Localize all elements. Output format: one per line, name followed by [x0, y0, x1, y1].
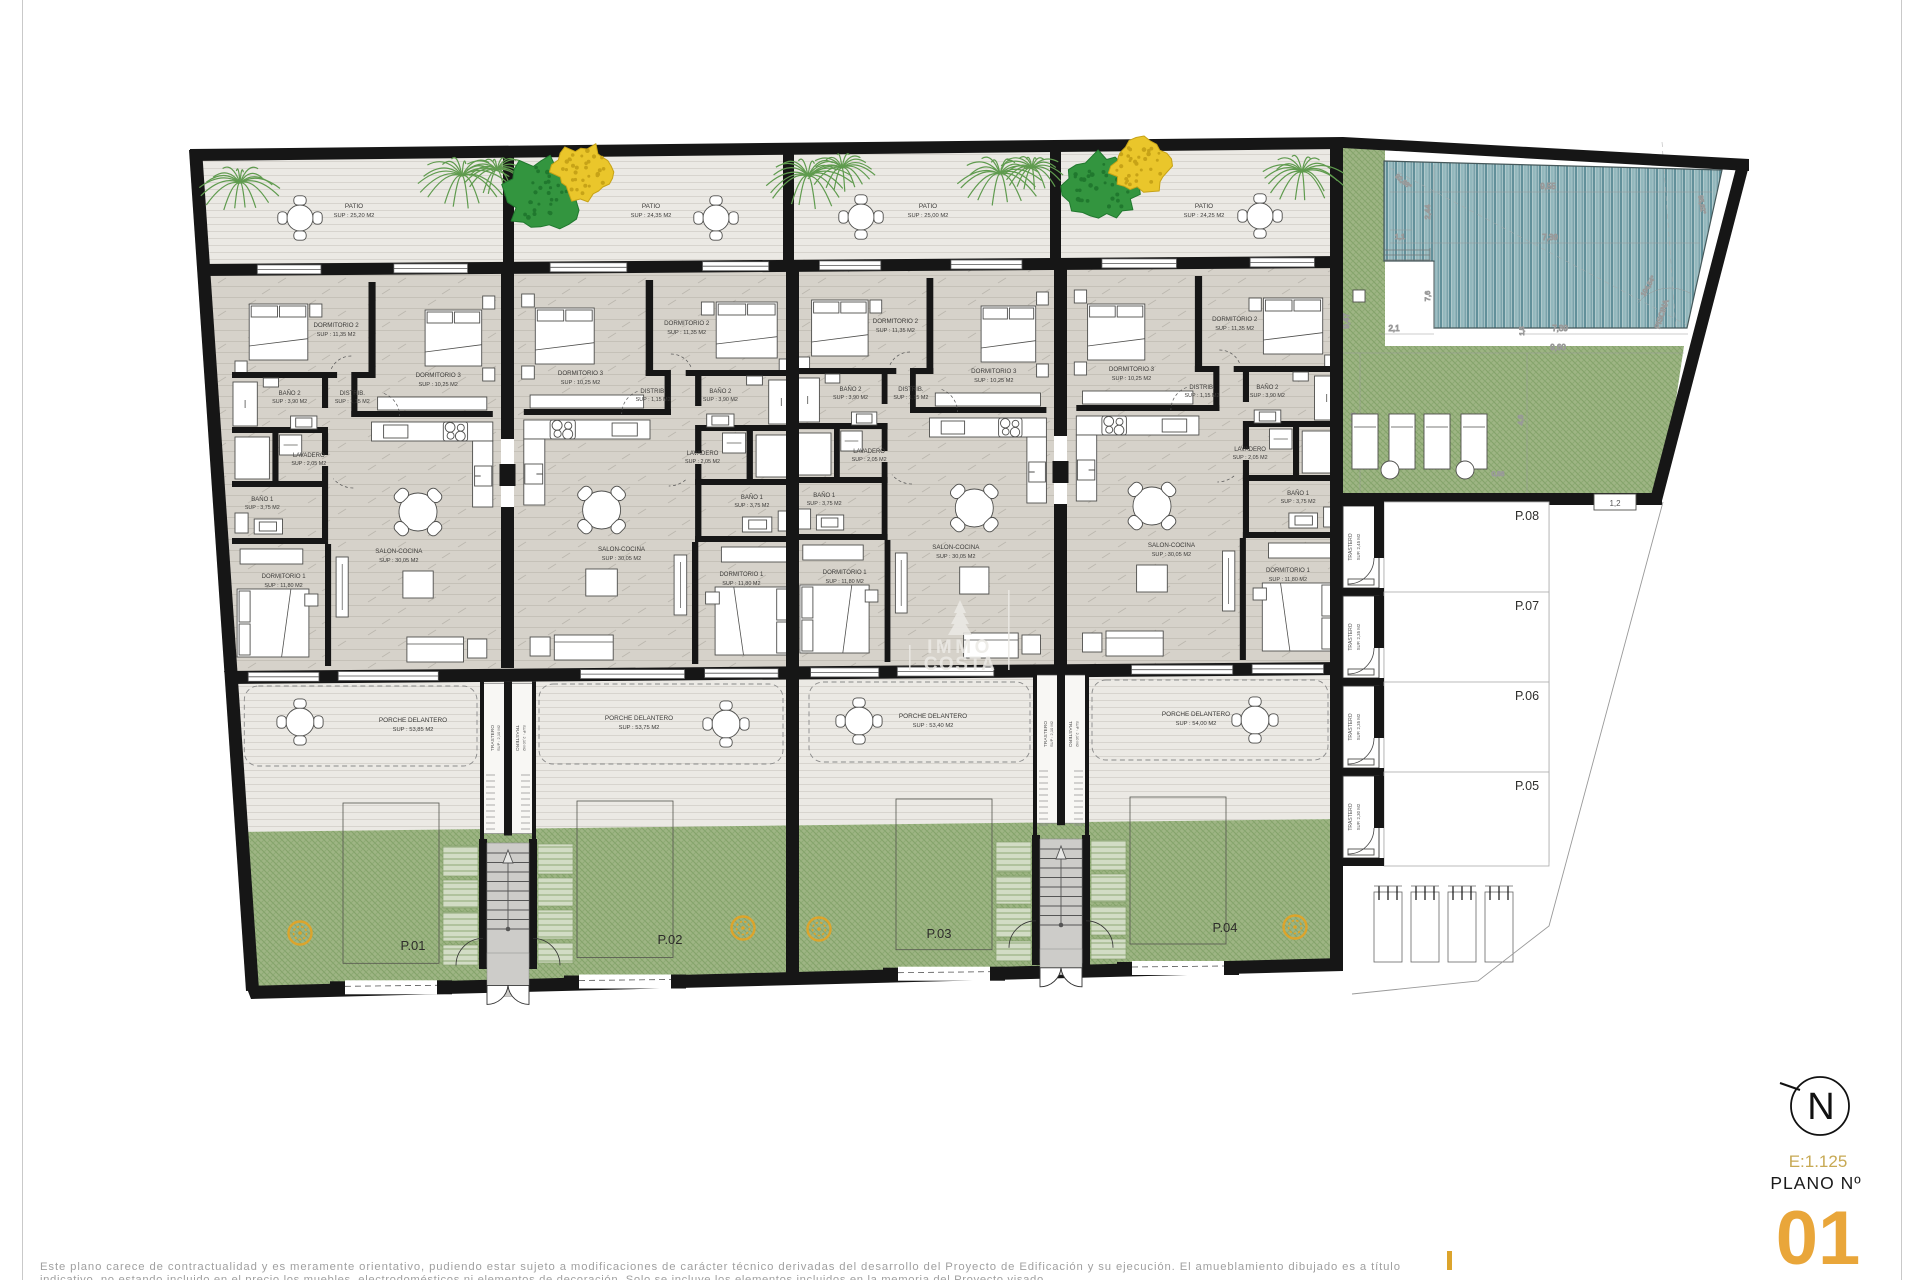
svg-text:DORMITORIO 2: DORMITORIO 2 [1212, 316, 1258, 323]
svg-text:BAÑO 2: BAÑO 2 [1256, 384, 1279, 391]
svg-text:DORMITORIO 1: DORMITORIO 1 [719, 572, 764, 578]
svg-text:SUP : 3,90 M2: SUP : 3,90 M2 [833, 395, 868, 401]
svg-text:1,1: 1,1 [1395, 232, 1405, 241]
svg-text:2,1: 2,1 [1388, 324, 1400, 333]
svg-text:DISTRIB.: DISTRIB. [1189, 385, 1215, 391]
svg-text:SUP. 2,35 M2: SUP. 2,35 M2 [1356, 623, 1361, 650]
svg-text:SUP : 3,90 M2: SUP : 3,90 M2 [272, 399, 307, 405]
svg-text:DORMITORIO 3: DORMITORIO 3 [416, 372, 462, 379]
svg-text:PATIO: PATIO [642, 203, 660, 210]
svg-text:SUP : 10,25 M2: SUP : 10,25 M2 [974, 378, 1013, 384]
svg-text:SUP : 30,05 M2: SUP : 30,05 M2 [1152, 552, 1191, 558]
svg-text:SUP : 1,15 M2: SUP : 1,15 M2 [636, 397, 671, 403]
svg-text:SUP. 2,45 M2: SUP. 2,45 M2 [1356, 533, 1361, 560]
svg-text:SUP : 3,90 M2: SUP : 3,90 M2 [703, 397, 738, 403]
svg-text:PORCHE DELANTERO: PORCHE DELANTERO [899, 713, 967, 720]
svg-text:PATIO: PATIO [1195, 203, 1213, 210]
svg-text:DISTRIB.: DISTRIB. [640, 389, 666, 395]
svg-text:SUP. 2,35 M2: SUP. 2,35 M2 [1356, 713, 1361, 740]
svg-text:SALON-COCINA: SALON-COCINA [375, 548, 423, 555]
svg-text:SUP : 53,85 M2: SUP : 53,85 M2 [393, 727, 434, 733]
svg-text:SUP : 11,35 M2: SUP : 11,35 M2 [317, 332, 356, 338]
svg-text:LAVADERO: LAVADERO [293, 453, 325, 459]
svg-text:SUP. 2,30 M2: SUP. 2,30 M2 [1356, 803, 1361, 830]
svg-text:TRASTERO: TRASTERO [1348, 623, 1354, 650]
svg-text:Este plano carece de contractu: Este plano carece de contractualidad y e… [40, 1261, 1400, 1273]
svg-text:DISTRIB.: DISTRIB. [340, 391, 366, 397]
svg-text:DORMITORIO 3: DORMITORIO 3 [971, 368, 1017, 375]
svg-text:SUP : 10,25 M2: SUP : 10,25 M2 [419, 382, 458, 388]
svg-text:SUP : 30,05 M2: SUP : 30,05 M2 [602, 556, 641, 562]
svg-text:SUP : 11,80 M2: SUP : 11,80 M2 [826, 579, 864, 585]
svg-text:LAVADERO: LAVADERO [687, 451, 719, 457]
svg-text:P.05: P.05 [1515, 779, 1539, 793]
svg-text:01: 01 [1776, 1196, 1861, 1280]
svg-text:DORMITORIO 2: DORMITORIO 2 [873, 318, 919, 325]
svg-text:PLANO Nº: PLANO Nº [1770, 1173, 1861, 1193]
svg-text:SUP : 11,35 M2: SUP : 11,35 M2 [667, 330, 706, 336]
svg-text:BAÑO 2: BAÑO 2 [839, 386, 862, 393]
svg-text:7,39: 7,39 [1542, 233, 1558, 242]
svg-text:P.01: P.01 [400, 938, 425, 953]
svg-text:SUP : 3,75 M2: SUP : 3,75 M2 [1281, 499, 1316, 505]
svg-text:SUP : 3,75 M2: SUP : 3,75 M2 [245, 505, 280, 511]
svg-text:SUP : 30,05 M2: SUP : 30,05 M2 [379, 558, 418, 564]
svg-text:E:1.125: E:1.125 [1789, 1152, 1848, 1171]
svg-text:SUP : 25,20 M2: SUP : 25,20 M2 [334, 213, 375, 219]
svg-text:SALON-COCINA: SALON-COCINA [932, 544, 980, 551]
svg-text:SUP : 1,15 M2: SUP : 1,15 M2 [1185, 393, 1220, 399]
svg-text:N: N [1807, 1086, 1834, 1128]
svg-text:BAÑO 1: BAÑO 1 [1287, 490, 1310, 497]
svg-text:1,2: 1,2 [1609, 499, 1621, 508]
svg-text:SUP : 3,90 M2: SUP : 3,90 M2 [1250, 393, 1285, 399]
svg-text:P.02: P.02 [657, 932, 682, 947]
svg-text:SUP : 3,75 M2: SUP : 3,75 M2 [807, 501, 842, 507]
svg-text:COSTA: COSTA [924, 654, 997, 675]
svg-text:DORMITORIO 3: DORMITORIO 3 [558, 370, 604, 377]
svg-text:SUP : 2,10 M2: SUP : 2,10 M2 [1075, 721, 1080, 748]
svg-text:SUP : 2,10 M2: SUP : 2,10 M2 [522, 725, 527, 752]
svg-text:BAÑO 2: BAÑO 2 [279, 390, 302, 397]
svg-text:SUP : 11,80 M2: SUP : 11,80 M2 [722, 581, 760, 587]
svg-text:1,5: 1,5 [1519, 326, 1526, 335]
svg-text:BAÑO 1: BAÑO 1 [741, 494, 764, 501]
svg-text:9,60: 9,60 [1550, 343, 1566, 352]
svg-text:PORCHE DELANTERO: PORCHE DELANTERO [605, 715, 673, 722]
svg-text:PORCHE DELANTERO: PORCHE DELANTERO [379, 717, 447, 724]
svg-text:LAVADERO: LAVADERO [1234, 447, 1266, 453]
svg-text:TRASTERO: TRASTERO [1348, 533, 1354, 560]
svg-text:P.03: P.03 [926, 926, 951, 941]
svg-text:SUP : 11,80 M2: SUP : 11,80 M2 [264, 583, 302, 589]
svg-text:PATIO: PATIO [345, 203, 363, 210]
svg-text:PORCHE DELANTERO: PORCHE DELANTERO [1162, 711, 1230, 718]
svg-text:SUP : 25,00 M2: SUP : 25,00 M2 [908, 213, 949, 219]
svg-text:P.04: P.04 [1212, 920, 1237, 935]
svg-text:DORMITORIO 1: DORMITORIO 1 [262, 574, 307, 580]
svg-text:SALON-COCINA: SALON-COCINA [598, 546, 646, 553]
svg-text:BAÑO 1: BAÑO 1 [813, 492, 836, 499]
svg-text:indicativo, no estando incluid: indicativo, no estando incluido en el pr… [40, 1274, 1047, 1280]
svg-text:SUP : 2,05 M2: SUP : 2,05 M2 [685, 459, 720, 465]
svg-text:DORMITORIO 2: DORMITORIO 2 [664, 320, 710, 327]
svg-text:9,47: 9,47 [1342, 313, 1351, 329]
svg-text:TRASTERO: TRASTERO [1348, 803, 1354, 830]
svg-text:P.08: P.08 [1515, 509, 1539, 523]
svg-text:DORMITORIO 1: DORMITORIO 1 [1266, 568, 1311, 574]
svg-text:TRASTERO: TRASTERO [1067, 721, 1073, 747]
svg-text:SUP : 1,15 M2: SUP : 1,15 M2 [893, 395, 928, 401]
svg-text:9,55: 9,55 [1540, 182, 1556, 191]
svg-text:SUP : 2,05 M2: SUP : 2,05 M2 [1233, 455, 1268, 461]
svg-text:DISTRIB.: DISTRIB. [898, 387, 924, 393]
svg-text:SUP : 53,75 M2: SUP : 53,75 M2 [619, 725, 660, 731]
svg-text:DORMITORIO 3: DORMITORIO 3 [1109, 366, 1155, 373]
svg-text:TRASTERO: TRASTERO [514, 725, 520, 751]
svg-text:SUP : 24,35 M2: SUP : 24,35 M2 [631, 213, 672, 219]
svg-text:BAÑO 1: BAÑO 1 [251, 496, 274, 503]
svg-text:SUP : 53,40 M2: SUP : 53,40 M2 [913, 723, 954, 729]
svg-text:DORMITORIO 1: DORMITORIO 1 [823, 570, 868, 576]
svg-text:SUP : 24,25 M2: SUP : 24,25 M2 [1184, 213, 1225, 219]
svg-text:P.06: P.06 [1515, 689, 1539, 703]
svg-text:SUP : 1,15 M2: SUP : 1,15 M2 [335, 399, 370, 405]
svg-text:P.07: P.07 [1515, 599, 1539, 613]
svg-text:7,39: 7,39 [1552, 324, 1568, 333]
svg-text:DORMITORIO 2: DORMITORIO 2 [313, 322, 359, 329]
svg-text:SUP : 2,05 M2: SUP : 2,05 M2 [291, 461, 326, 467]
svg-text:4,6: 4,6 [1516, 415, 1525, 425]
svg-text:PATIO: PATIO [919, 203, 937, 210]
svg-text:TRASTERO: TRASTERO [1348, 713, 1354, 740]
svg-text:SUP : 10,25 M2: SUP : 10,25 M2 [1112, 376, 1151, 382]
svg-text:2,44: 2,44 [1423, 205, 1432, 220]
svg-text:SUP : 11,35 M2: SUP : 11,35 M2 [1215, 326, 1254, 332]
svg-text:7,6: 7,6 [1423, 291, 1432, 301]
svg-text:SUP : 11,35 M2: SUP : 11,35 M2 [876, 328, 915, 334]
svg-text:SUP : 54,00 M2: SUP : 54,00 M2 [1176, 721, 1217, 727]
svg-text:SUP : 2,05 M2: SUP : 2,05 M2 [852, 457, 887, 463]
svg-text:SUP : 3,75 M2: SUP : 3,75 M2 [734, 503, 769, 509]
svg-text:SUP : 30,05 M2: SUP : 30,05 M2 [936, 554, 975, 560]
svg-text:BAÑO 2: BAÑO 2 [709, 388, 732, 395]
svg-text:SALON-COCINA: SALON-COCINA [1148, 542, 1196, 549]
svg-text:SUP : 2,10 M2: SUP : 2,10 M2 [1049, 720, 1054, 747]
svg-text:SUP : 11,80 M2: SUP : 11,80 M2 [1269, 577, 1307, 583]
svg-text:SUP : 10,25 M2: SUP : 10,25 M2 [561, 380, 600, 386]
svg-text:SUP : 2,10 M2: SUP : 2,10 M2 [496, 724, 501, 751]
svg-text:0,56: 0,56 [1492, 471, 1505, 478]
svg-text:LAVADERO: LAVADERO [853, 449, 885, 455]
